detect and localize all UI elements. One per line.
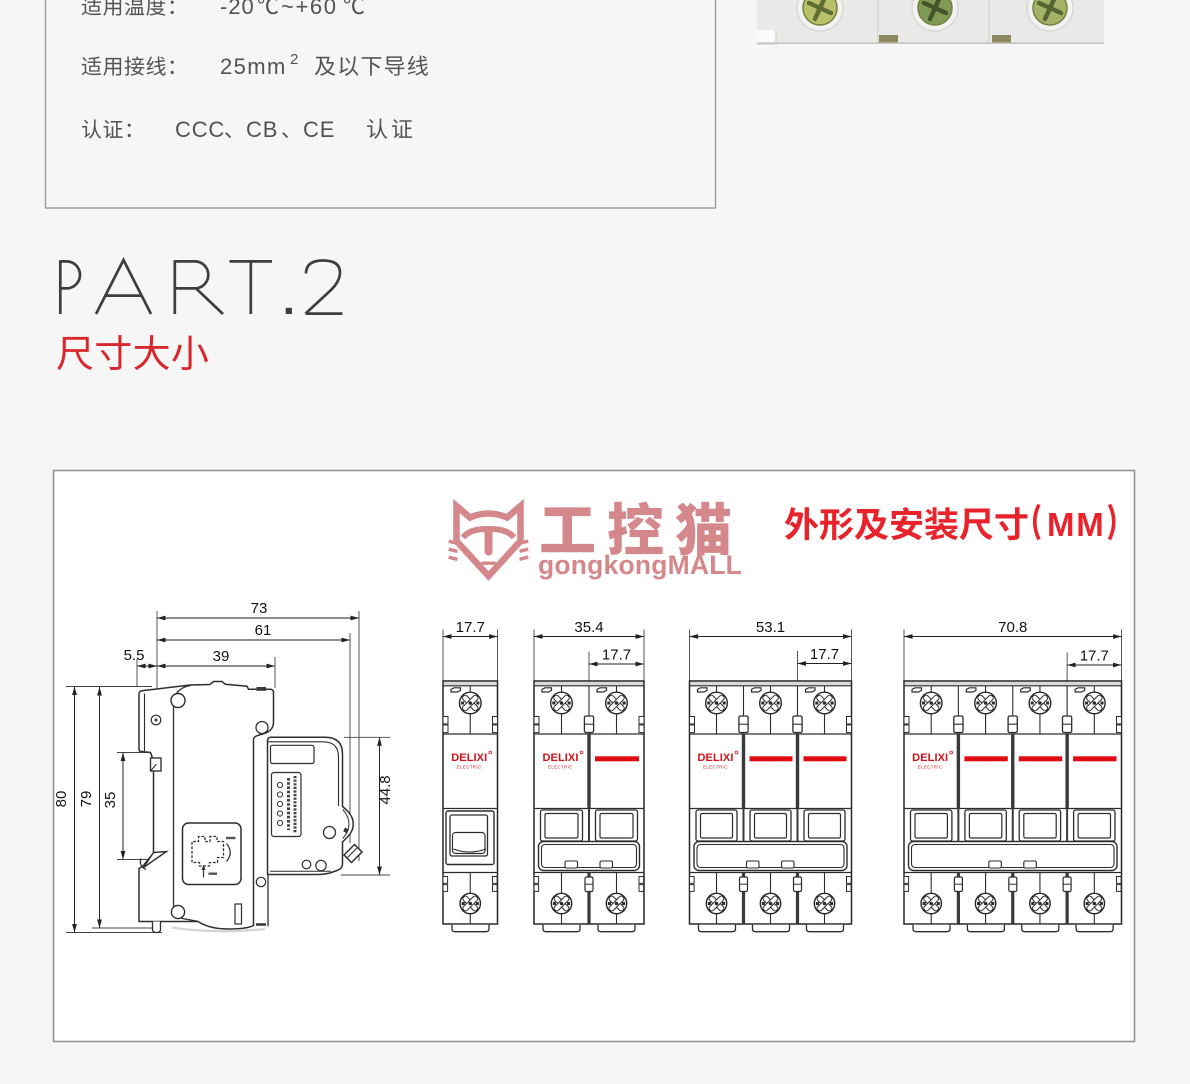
svg-text:-20: -20 bbox=[220, 0, 255, 19]
svg-text:2: 2 bbox=[290, 51, 298, 68]
svg-text:35: 35 bbox=[102, 792, 119, 809]
svg-text:ELECTRIC: ELECTRIC bbox=[548, 765, 573, 770]
svg-text:80: 80 bbox=[53, 791, 70, 808]
svg-text:53.1: 53.1 bbox=[756, 619, 785, 636]
svg-text:44.8: 44.8 bbox=[377, 775, 394, 804]
svg-text:CCC: CCC bbox=[175, 117, 225, 142]
svg-text:5.5: 5.5 bbox=[124, 647, 145, 664]
svg-text:~+60: ~+60 bbox=[281, 0, 338, 19]
svg-text:DELIXI: DELIXI bbox=[451, 752, 487, 764]
svg-text:DELIXI: DELIXI bbox=[542, 752, 578, 764]
svg-text:CB: CB bbox=[246, 117, 278, 142]
svg-text:79: 79 bbox=[78, 791, 95, 808]
svg-text:73: 73 bbox=[251, 600, 268, 617]
svg-text:39: 39 bbox=[213, 648, 230, 665]
svg-text:35.4: 35.4 bbox=[574, 619, 603, 636]
svg-text:17.7: 17.7 bbox=[1080, 648, 1109, 665]
svg-text:ELECTRIC: ELECTRIC bbox=[703, 765, 728, 770]
svg-text:70.8: 70.8 bbox=[998, 619, 1027, 636]
svg-text:ELECTRIC: ELECTRIC bbox=[918, 765, 943, 770]
svg-text:gongkongMALL: gongkongMALL bbox=[538, 550, 742, 580]
svg-text:17.7: 17.7 bbox=[456, 619, 485, 636]
svg-text:DELIXI: DELIXI bbox=[912, 752, 948, 764]
svg-text:61: 61 bbox=[255, 622, 272, 639]
svg-text:17.7: 17.7 bbox=[602, 647, 631, 664]
svg-text:CE: CE bbox=[303, 117, 335, 142]
svg-text:DELIXI: DELIXI bbox=[697, 752, 733, 764]
svg-text:ELECTRIC: ELECTRIC bbox=[457, 765, 482, 770]
svg-text:25mm: 25mm bbox=[220, 54, 287, 79]
svg-text:17.7: 17.7 bbox=[810, 646, 839, 663]
svg-text:MM: MM bbox=[1047, 506, 1106, 543]
